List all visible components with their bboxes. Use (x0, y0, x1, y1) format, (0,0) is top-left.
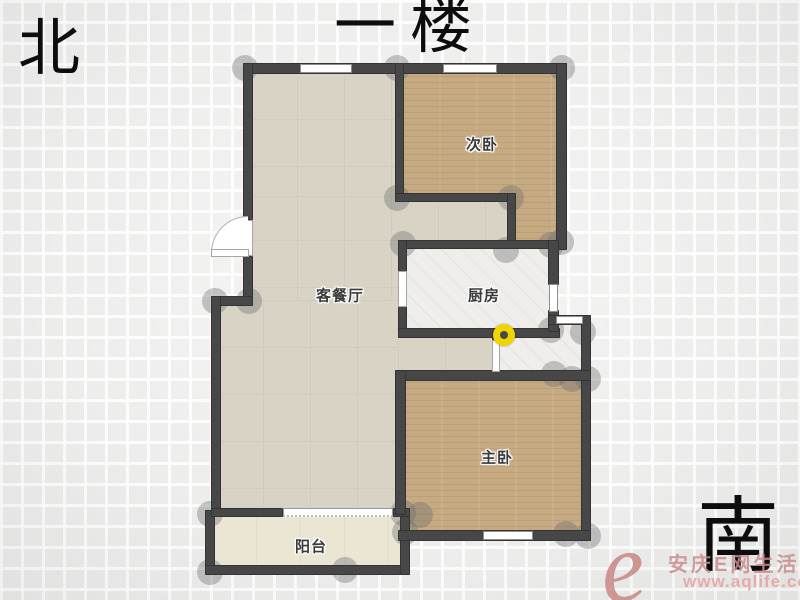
wall-segment (398, 240, 560, 249)
wall-segment (400, 510, 410, 575)
wall-junction-marker (407, 502, 433, 528)
window (443, 64, 497, 73)
window (549, 284, 558, 312)
living-dining-floor (216, 300, 401, 512)
floor-plan-canvas: 次卧 客餐厅 厨房 主卧 阳台 北 一楼 南 e 安庆E网生活 www.aqli… (0, 0, 800, 600)
wall-segment (581, 315, 591, 541)
wall-segment (398, 240, 407, 272)
watermark-url: www.aqlife.com (683, 572, 800, 592)
compass-north-label: 北 (18, 18, 80, 80)
secondary-bedroom-label: 次卧 (466, 134, 498, 155)
wall-segment (211, 508, 283, 517)
page-title: 一楼 (334, 0, 486, 58)
window (483, 531, 533, 540)
master-bedroom-label: 主卧 (481, 447, 513, 468)
kitchen-label: 厨房 (468, 285, 500, 306)
living-dining-floor (250, 196, 512, 246)
wall-segment (211, 296, 221, 514)
door-pivot-marker (493, 324, 515, 346)
wall-segment (243, 63, 567, 74)
entry-door-swing-arc (211, 216, 248, 253)
wall-segment (395, 370, 406, 515)
kitchen-door (398, 271, 407, 307)
wall-segment (395, 193, 515, 202)
living-dining-label: 客餐厅 (316, 285, 364, 306)
wall-segment (243, 63, 253, 220)
wall-segment (556, 63, 567, 250)
wall-segment (395, 63, 404, 202)
window (556, 316, 583, 324)
watermark-e-logo-icon: e (593, 515, 651, 600)
wall-segment (398, 328, 560, 338)
balcony-label: 阳台 (295, 536, 327, 557)
entry-door-leaf (211, 249, 249, 257)
wall-segment (205, 565, 410, 575)
living-dining-floor (250, 72, 398, 205)
wall-segment (507, 193, 516, 245)
window (300, 64, 352, 73)
balcony-sliding-door (283, 508, 393, 517)
door-pivot-hole (500, 331, 508, 339)
wall-segment (548, 240, 559, 285)
